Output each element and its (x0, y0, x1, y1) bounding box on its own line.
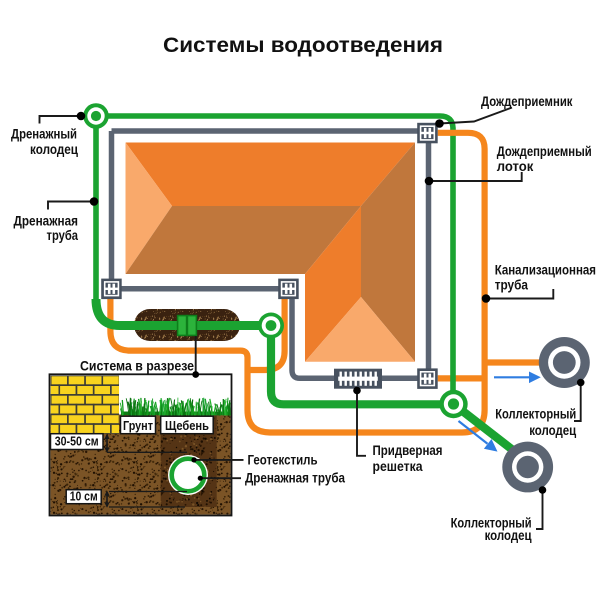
svg-text:30-50 см: 30-50 см (55, 433, 99, 448)
svg-text:Системы водоотведения: Системы водоотведения (163, 33, 443, 57)
svg-text:Дренажная: Дренажная (14, 213, 79, 228)
svg-text:лоток: лоток (497, 159, 534, 174)
svg-text:труба: труба (495, 277, 529, 292)
svg-text:Геотекстиль: Геотекстиль (248, 453, 318, 468)
svg-text:Канализационная: Канализационная (495, 263, 596, 278)
svg-text:решетка: решетка (373, 459, 424, 474)
svg-text:колодец: колодец (529, 423, 577, 438)
svg-text:Дождеприемный: Дождеприемный (497, 144, 592, 159)
svg-text:Грунт: Грунт (123, 418, 153, 433)
svg-text:Коллекторный: Коллекторный (495, 407, 576, 422)
svg-text:Дождеприемник: Дождеприемник (481, 94, 573, 109)
svg-text:Придверная: Придверная (373, 443, 443, 458)
svg-text:колодец: колодец (30, 142, 79, 157)
svg-text:Дренажная труба: Дренажная труба (245, 471, 345, 486)
svg-text:колодец: колодец (485, 528, 533, 543)
svg-text:Щебень: Щебень (165, 418, 209, 433)
svg-text:труба: труба (47, 228, 79, 243)
svg-text:10 см: 10 см (70, 489, 98, 504)
svg-text:Система в разрезе: Система в разрезе (80, 359, 194, 374)
svg-text:Дренажный: Дренажный (11, 126, 77, 141)
